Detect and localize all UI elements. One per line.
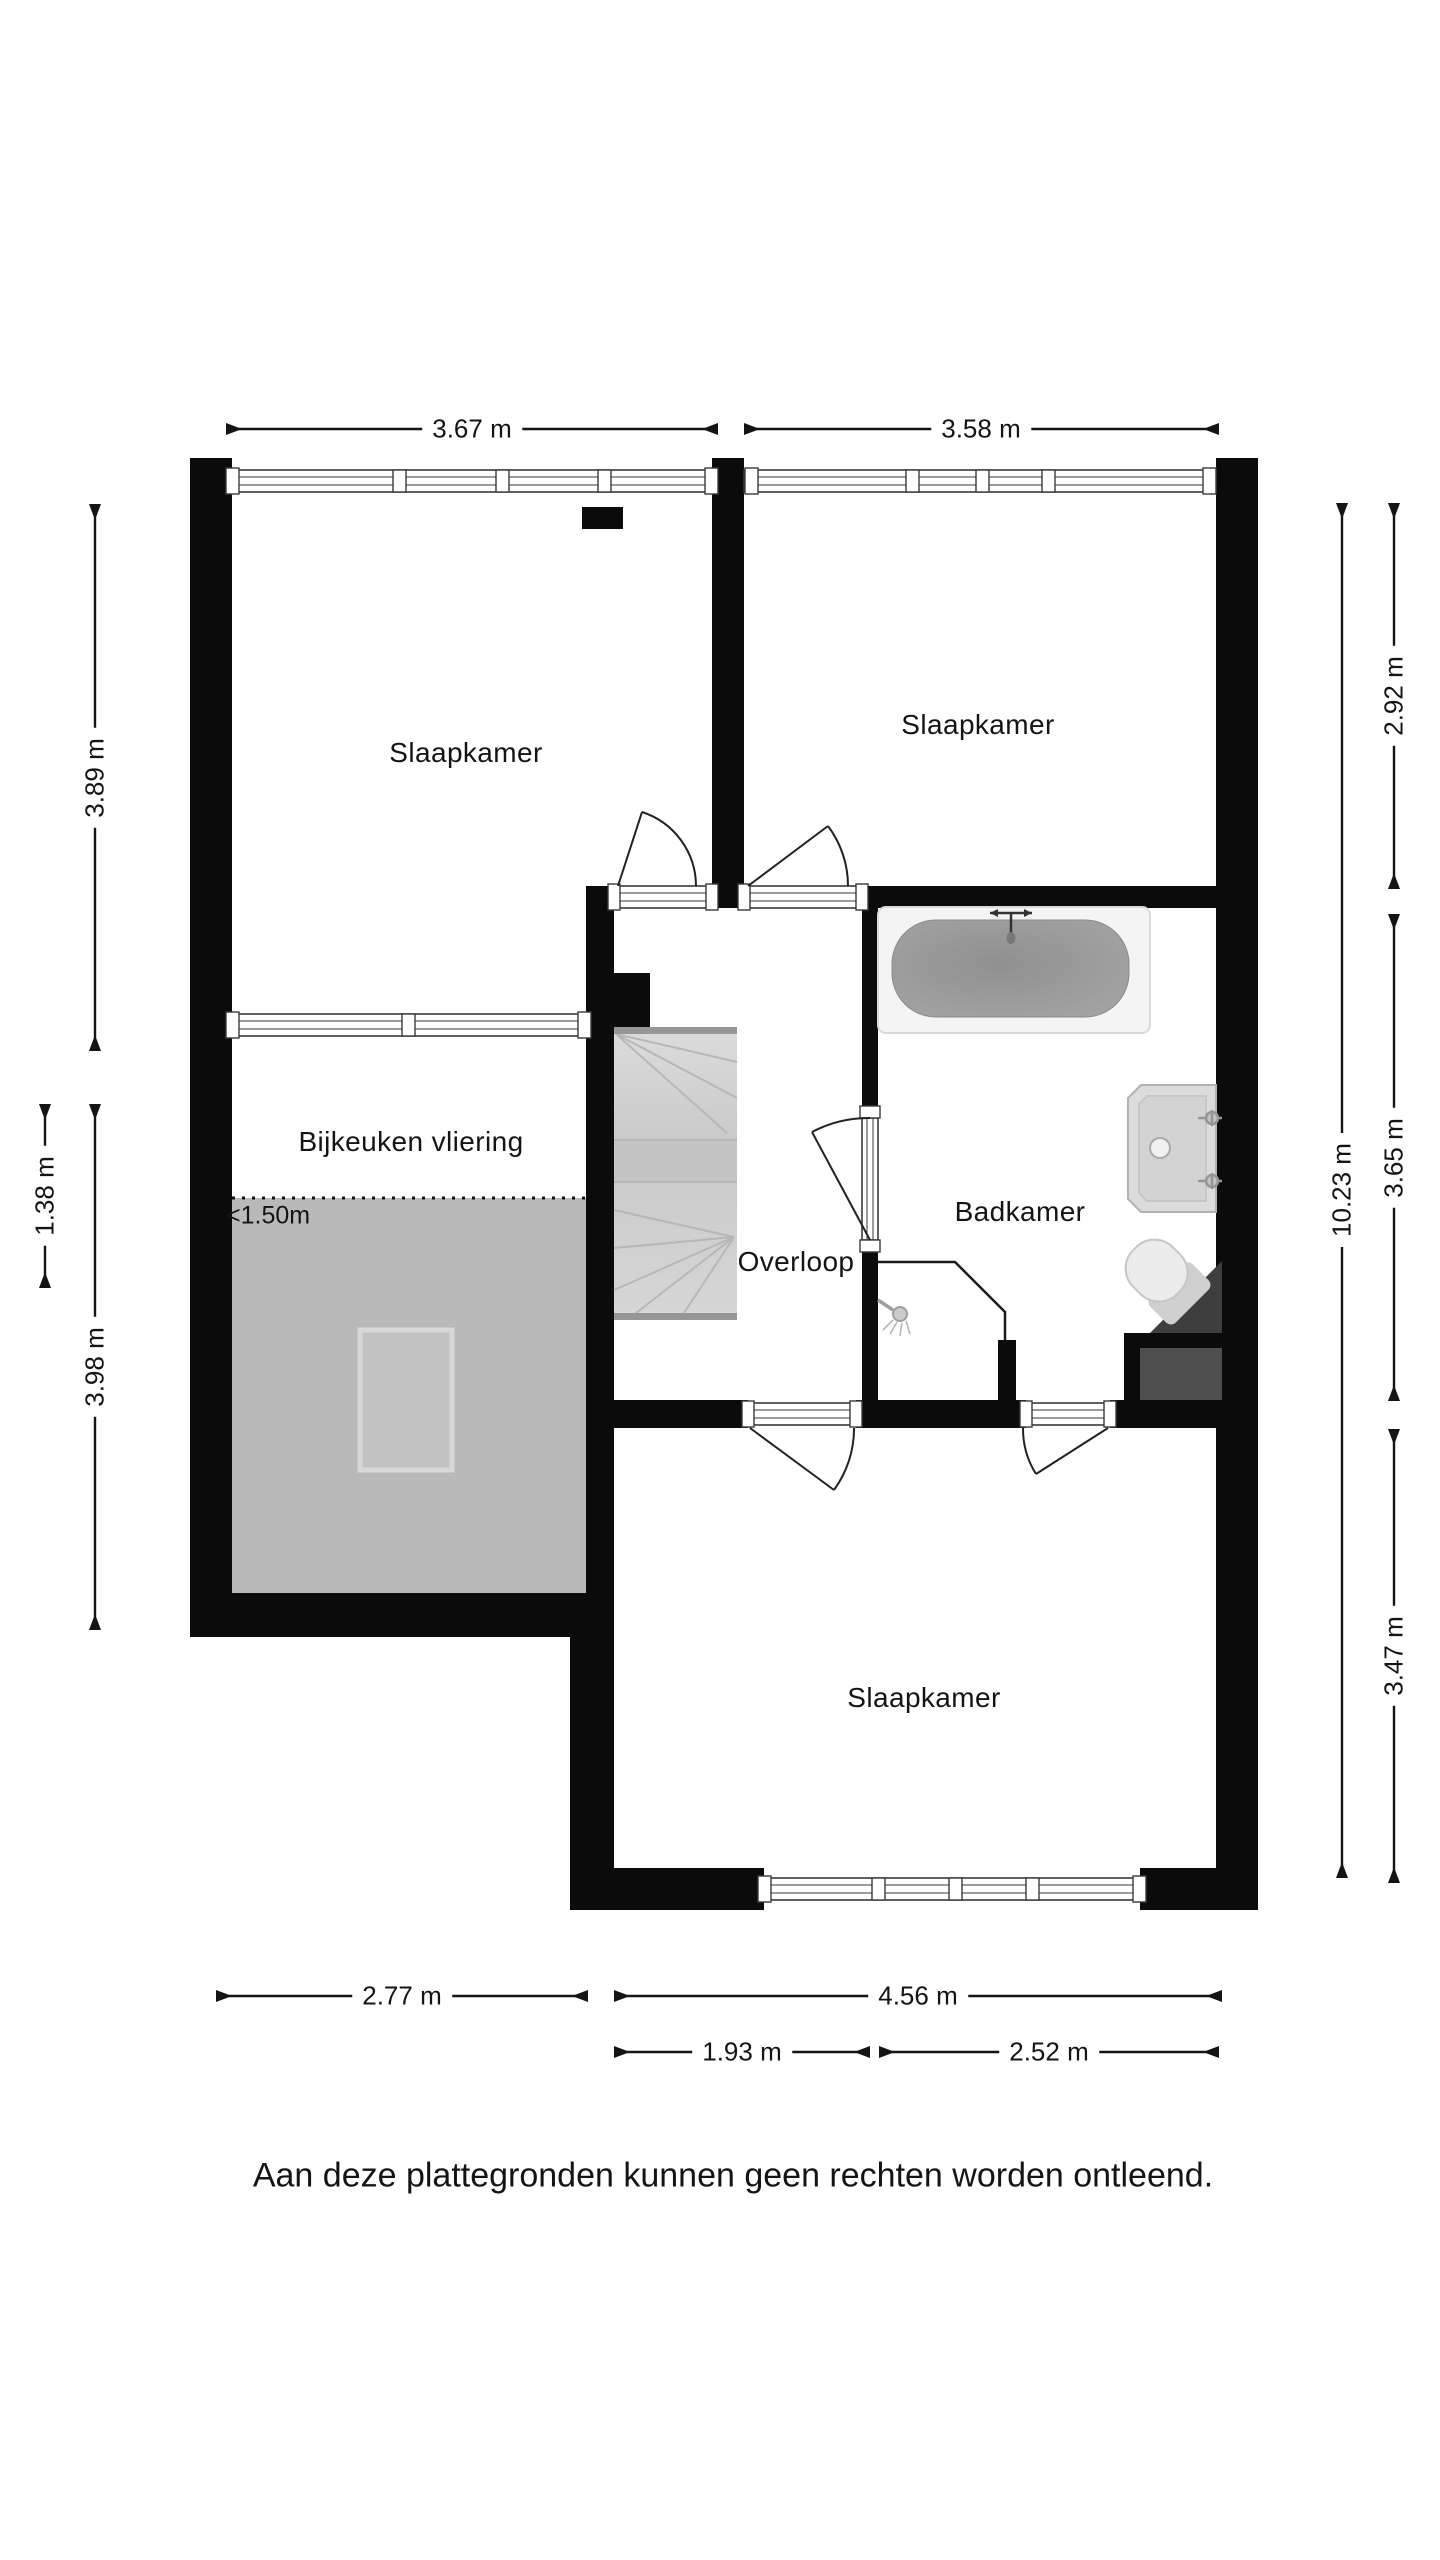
floorplan-canvas: Slaapkamer Slaapkamer Bijkeuken vliering… (0, 0, 1440, 2560)
wall-alcove-left (1124, 1333, 1140, 1400)
bathroom-alcove (1140, 1348, 1222, 1400)
window-top-left (226, 468, 718, 494)
dim-top-right: 3.58 m (931, 415, 1031, 444)
room-label-utility-attic: Bijkeuken vliering (298, 1126, 523, 1158)
wall-bedroom-bottom-left (570, 1593, 614, 1910)
dim-right-upper: 2.92 m (1380, 646, 1409, 746)
room-label-bedroom-bottom: Slaapkamer (847, 1682, 1000, 1714)
wall-bedroom-divider (712, 458, 744, 908)
window-top-right (744, 468, 1216, 494)
door-bedroom-bottom-left (750, 1428, 854, 1490)
wall-bathroom-top (862, 886, 1258, 908)
dim-left-lower: 3.98 m (81, 1317, 110, 1417)
window-utility (226, 1012, 591, 1038)
shower-area (878, 1262, 1005, 1340)
room-label-bedroom-top-right: Slaapkamer (901, 709, 1054, 741)
door-threshold-bedroom-bottom-left (742, 1401, 862, 1427)
shower-partition (878, 1262, 1005, 1340)
door-threshold-bathroom (860, 1106, 880, 1252)
door-bedroom-top-left (618, 812, 696, 886)
door-bedroom-bottom-right (1023, 1428, 1108, 1474)
wall-landing-left (586, 886, 614, 1637)
dim-right-middle: 3.65 m (1380, 1108, 1409, 1208)
wall-utility-bottom (190, 1593, 612, 1637)
dim-left-upper: 3.89 m (81, 728, 110, 828)
room-label-landing: Overloop (738, 1246, 855, 1278)
dim-left-inner: 1.38 m (31, 1146, 60, 1246)
chimney-bedroom (582, 507, 623, 529)
room-label-bathroom: Badkamer (955, 1196, 1086, 1228)
wall-bottom-outer-b (1140, 1868, 1258, 1910)
disclaimer-text: Aan deze plattegronden kunnen geen recht… (253, 2157, 1213, 2196)
wall-top-corner-right (1216, 458, 1258, 500)
door-threshold-bedroom-top-right (738, 884, 868, 910)
washbasin-drain (1150, 1138, 1170, 1158)
wall-bottom-outer-a (570, 1868, 764, 1910)
staircase (614, 1027, 737, 1320)
wall-bottom-mid-a (586, 1400, 748, 1428)
dim-bottom-inner-left: 1.93 m (692, 2038, 792, 2067)
dim-bottom-right: 4.56 m (868, 1982, 968, 2011)
window-bottom (758, 1876, 1146, 1902)
wall-landing-bathroom-upper (862, 908, 878, 1108)
wall-bottom-mid-c (1110, 1400, 1258, 1428)
staircase-bottom-edge (614, 1313, 737, 1320)
door-threshold-bedroom-top-left (608, 884, 718, 910)
bathtub (878, 907, 1150, 1033)
washbasin (1128, 1085, 1222, 1212)
wall-left-outer (190, 458, 232, 1637)
door-threshold-bedroom-bottom-right (1020, 1401, 1116, 1427)
skylight (360, 1330, 452, 1470)
wall-bottom-mid-b (856, 1400, 1026, 1428)
dim-right-lower: 3.47 m (1380, 1606, 1409, 1706)
door-bedroom-top-right (748, 826, 848, 886)
room-label-bedroom-top-left: Slaapkamer (389, 737, 542, 769)
dim-top-left: 3.67 m (422, 415, 522, 444)
dim-bottom-inner-right: 2.52 m (999, 2038, 1099, 2067)
dim-right-total: 10.23 m (1328, 1133, 1357, 1247)
shower-head-icon (878, 1300, 910, 1336)
wall-right-outer (1216, 458, 1258, 1910)
wall-shower-stub (998, 1340, 1016, 1400)
wall-landing-bathroom-lower (862, 1240, 878, 1428)
chimney-landing (614, 973, 650, 1027)
low-height-area (232, 1198, 586, 1593)
low-height-marker: <1.50m (226, 1202, 310, 1231)
dim-bottom-left: 2.77 m (352, 1982, 452, 2011)
staircase-top-edge (614, 1027, 737, 1034)
staircase-mid-landing (614, 1140, 737, 1182)
toilet (1115, 1229, 1222, 1333)
